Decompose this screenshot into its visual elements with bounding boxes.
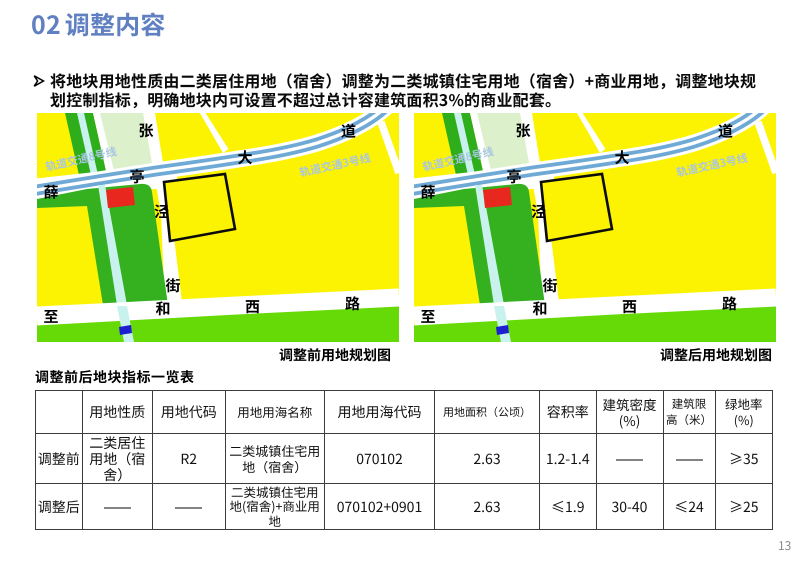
svg-text:亭: 亭 bbox=[129, 166, 144, 187]
svg-text:街: 街 bbox=[165, 275, 180, 296]
svg-text:张: 张 bbox=[515, 120, 530, 141]
svg-text:大: 大 bbox=[237, 147, 252, 168]
svg-text:西: 西 bbox=[245, 296, 260, 317]
svg-text:和: 和 bbox=[532, 298, 547, 319]
svg-text:道: 道 bbox=[341, 121, 356, 142]
svg-text:泾: 泾 bbox=[154, 201, 169, 222]
svg-text:路: 路 bbox=[345, 293, 360, 314]
svg-text:薛: 薛 bbox=[420, 182, 435, 203]
svg-text:道: 道 bbox=[718, 121, 733, 142]
svg-text:张: 张 bbox=[138, 120, 153, 141]
svg-text:至: 至 bbox=[43, 306, 58, 327]
svg-text:和: 和 bbox=[155, 298, 170, 319]
svg-text:亭: 亭 bbox=[506, 166, 521, 187]
svg-text:至: 至 bbox=[420, 306, 435, 327]
svg-text:街: 街 bbox=[542, 275, 557, 296]
svg-text:西: 西 bbox=[622, 296, 637, 317]
svg-text:泾: 泾 bbox=[531, 201, 546, 222]
svg-text:路: 路 bbox=[722, 293, 737, 314]
svg-text:大: 大 bbox=[614, 147, 629, 168]
svg-text:薛: 薛 bbox=[43, 182, 58, 203]
